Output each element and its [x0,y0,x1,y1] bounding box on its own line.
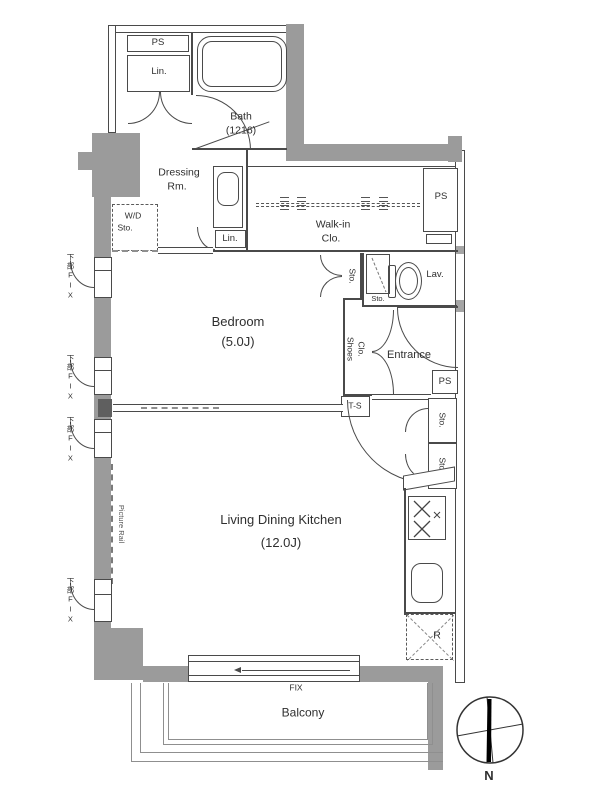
bedroom-size-label: (5.0J) [221,335,254,349]
window-left-2-mullion [94,370,112,371]
sliding-door-dashes [141,407,219,411]
wall-topright-horizontal [286,144,458,161]
refrigerator-box [406,614,453,660]
wall-bottomleft-block [94,628,143,680]
refrigerator-label: R [433,630,441,641]
walkin-top-line [248,166,456,167]
lav-wall-left [362,253,364,307]
hanger-icon-3 [361,197,370,212]
hanger-icon-4 [379,197,388,212]
window-left-1 [94,257,112,298]
wall-topleft-notch [78,152,92,170]
window-left-4 [94,579,112,622]
toilet-seat-icon [399,267,418,295]
wall-left-seg2 [94,298,111,357]
window-left-3 [94,419,112,458]
washer-dryer-label: W/D [125,212,142,221]
shoes-closet-label-1: Shoes [346,337,355,361]
shoes-door-arc-top [372,310,394,352]
pipe-space-lower-label: PS [439,377,452,387]
bedroom-top-wall [213,250,458,252]
window-left-2-label: 下部FIX [66,355,74,402]
storage-col-label: Sto. [348,268,357,283]
walkin-label-1: Walk-in [316,219,351,230]
wall-left-seg1 [94,197,111,257]
ldk-label: Living Dining Kitchen [220,513,341,527]
wall-bottom-right-seg [358,666,443,682]
fix-window-line-bottom [188,675,360,676]
dressing-room-label-1: Dressing [158,167,199,178]
shoes-closet-label-2: Clo. [357,341,366,356]
storage-door-arc-top [320,255,342,276]
linen-door-arc-left [128,92,160,124]
stove-burners-icon [409,497,445,539]
washer-dryer-storage-label: Sto. [117,224,132,233]
linen-closet-label: Lin. [151,67,166,77]
wall-left-upper-band [108,25,116,133]
sink-icon [411,563,443,603]
picture-rail-label: Picture Rail [117,505,125,543]
wall-topright-vertical [286,24,304,161]
floor-plan: PS Lin. Bath (1216) Dressing Rm. W/D Sto… [0,0,600,800]
lav-storage-label: Sto. [371,295,384,303]
window-left-2 [94,357,112,395]
bathtub-inner-icon [202,41,282,87]
linen-door-arc-right [160,92,192,124]
bedroom-top-dashed [112,250,158,254]
storage-door-arc-bottom [320,276,342,297]
sliding-door-pocket [98,399,112,417]
window-left-4-label: 下部FIX [66,578,74,625]
window-left-3-label: 下部FIX [66,417,74,464]
fix-window [188,655,360,682]
fix-window-arrow-icon [234,667,241,673]
fix-window-line-top [188,661,360,662]
hanger-icon-1 [280,197,289,212]
dressing-bedroom-opening [158,247,213,254]
balcony-label: Balcony [282,707,325,720]
window-left-4-mullion [94,594,112,595]
window-left-3-mullion [94,432,112,433]
lav-storage-box [366,254,390,294]
pipe-space-top-label: PS [152,38,165,48]
storage-col-right-wall [360,253,362,300]
stove-icon [408,496,446,540]
wall-topright-stub [448,136,462,162]
picture-rail-line [111,464,116,584]
refrigerator-cross-icon [407,615,454,661]
storage-right-label-1: Sto. [438,412,447,427]
wall-left-seg4 [94,458,111,579]
walkin-label-2: Clo. [322,233,341,244]
ldk-size-label: (12.0J) [261,536,301,550]
window-left-1-label: 下部FIX [66,254,74,301]
wall-top-band [108,25,290,33]
bath-wall-left [191,33,193,95]
linen-small-label: Lin. [222,234,237,244]
bath-label: Bath [230,111,252,122]
hanger-icon-2 [297,197,306,212]
wall-topleft-pillar [92,133,140,197]
window-left-1-mullion [94,270,112,271]
compass-icon [455,694,525,768]
fix-window-slide-line [242,670,350,671]
compass-north-label: N [484,769,493,783]
dressing-room-label-2: Rm. [167,181,186,192]
vanity-sink-icon [217,172,239,206]
entrance-label: Entrance [387,350,431,362]
kitchen-counter-left [404,488,406,615]
storage-col-bottom-wall [343,298,362,300]
wall-bottom-left-seg [143,666,189,682]
bedroom-label: Bedroom [212,315,265,329]
bath-size-label: (1216) [226,125,256,136]
pipe-space-right-label: PS [435,192,448,202]
lavatory-label: Lav. [426,270,443,280]
walkin-shelf [426,234,452,244]
